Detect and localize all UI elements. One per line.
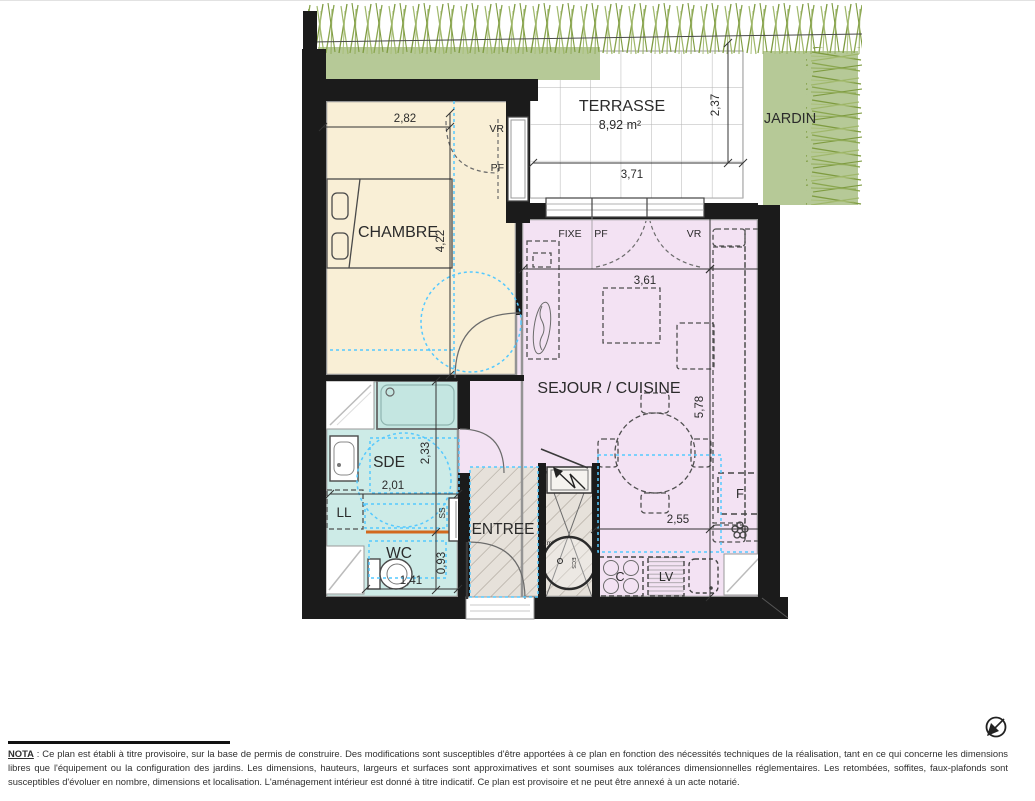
svg-text:2,37: 2,37 [710,94,722,116]
label-sejour: SEJOUR / CUISINE [537,380,680,397]
label-bay-vr: VR [687,228,702,240]
chambre-window [508,117,528,201]
sejour-bay-window [546,198,704,217]
svg-text:2,55: 2,55 [667,514,689,526]
north-arrow-icon [987,718,1006,737]
label-jardin: JARDIN [764,111,816,127]
label-lave-linge: LL [336,505,352,520]
nota-paragraph: NOTA : Ce plan est établi à titre provis… [8,747,1008,789]
svg-text:5,78: 5,78 [694,396,706,418]
label-chambre-pf: PF [491,162,504,174]
svg-text:3,71: 3,71 [621,169,643,181]
sde-door-gap [458,429,470,473]
label-placard-area: 1m² [543,540,555,547]
label-terrasse-area: 8,92 m² [599,118,641,132]
label-sde: SDE [373,454,405,471]
window-sde [326,381,374,429]
window-kitchen [724,554,762,595]
svg-text:2,82: 2,82 [394,113,416,125]
svg-text:2,33: 2,33 [420,442,432,464]
window-wc [326,546,364,594]
svg-text:3,61: 3,61 [634,275,656,287]
label-chambre-vr: VR [489,123,504,135]
corridor-floor [470,381,522,467]
footer-rule [8,741,230,744]
label-chauffe-eau: ECS [570,557,576,569]
floor-plan: 2,82 4,22 2,37 3,71 3,61 5,78 2,55 2,33 [0,1,1035,801]
shower [377,381,458,429]
electrical-panel [547,467,592,493]
label-bay-fixe: FIXE [558,228,581,240]
nota-body: : Ce plan est établi à titre provisoire,… [8,748,1008,787]
svg-text:1,41: 1,41 [400,575,422,587]
washbasin [330,436,358,481]
label-chambre: CHAMBRE [358,224,438,241]
label-cuisson: C [615,570,624,584]
entrance-threshold [466,597,534,619]
label-terrasse: TERRASSE [579,98,665,115]
svg-text:2,01: 2,01 [382,480,404,492]
label-frigo: F [736,486,744,501]
floor-plan-page: 2,82 4,22 2,37 3,71 3,61 5,78 2,55 2,33 [0,0,1035,801]
svg-text:0,93: 0,93 [436,552,448,574]
label-seche-serviettes: SS [437,507,447,519]
label-bay-pf: PF [594,228,607,240]
label-lave-vaisselle: LV [659,570,674,584]
label-entree: ENTREE [472,521,535,538]
nota-label: NOTA [8,748,34,759]
label-wc: WC [386,545,412,562]
